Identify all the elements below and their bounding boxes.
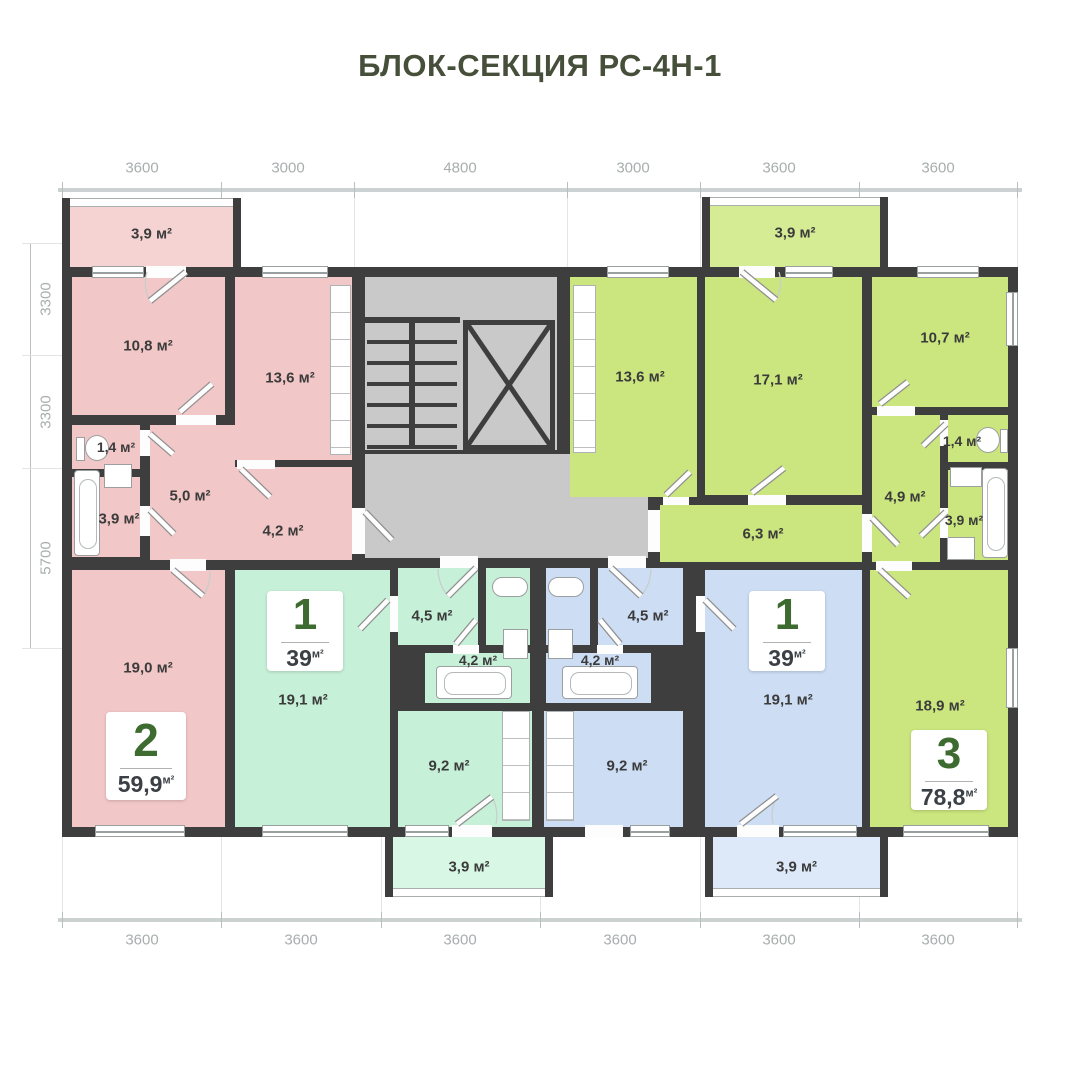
kitchen-counter-icon — [573, 285, 596, 453]
dim-tick — [700, 912, 701, 928]
room-pink-corridor — [235, 467, 352, 560]
balcony-glazing — [710, 197, 880, 206]
room-label: 4,2 м² — [459, 652, 497, 668]
door-opening — [862, 514, 872, 552]
dim-label-left: 5700 — [38, 541, 55, 574]
room-label: 4,5 м² — [627, 608, 668, 625]
sink-icon — [548, 629, 573, 659]
window — [262, 266, 328, 278]
room-label: 6,3 м² — [742, 526, 783, 543]
window — [903, 825, 989, 837]
room-label: 4,5 м² — [411, 608, 452, 625]
room-label: 1,4 м² — [943, 433, 981, 449]
room-label: 13,6 м² — [265, 370, 314, 387]
balcony-lime: 3,9 м² — [702, 197, 888, 267]
dim-tick — [859, 182, 860, 198]
balcony-pink: 3,9 м² — [62, 198, 241, 267]
kitchen-counter-icon — [330, 285, 351, 455]
door-opening — [585, 825, 623, 837]
room-label: 9,2 м² — [606, 758, 647, 775]
room-label: 19,0 м² — [123, 660, 172, 677]
badge-divider — [925, 781, 974, 782]
bathtub-icon — [562, 666, 638, 699]
dim-label-top: 3600 — [762, 160, 795, 177]
door-opening — [648, 510, 660, 552]
elevator-icon — [463, 320, 555, 450]
window — [95, 825, 185, 837]
kitchen-counter-icon — [502, 711, 530, 821]
guide-line — [22, 648, 62, 649]
window — [1006, 292, 1018, 346]
room-label: 3,9 м² — [776, 859, 817, 876]
guide-line — [1017, 837, 1018, 920]
window — [607, 266, 669, 278]
balcony-glazing — [713, 888, 880, 897]
dim-label-top: 3600 — [125, 160, 158, 177]
apartment-rooms-count: 1 — [775, 593, 799, 637]
balcony-glazing — [393, 888, 545, 897]
room-label: 3,9 м² — [945, 512, 983, 528]
room-label: 4,2 м² — [262, 523, 303, 540]
door-opening — [696, 596, 705, 632]
window — [405, 825, 449, 837]
room-label: 4,9 м² — [884, 489, 925, 506]
guide-line — [700, 190, 701, 270]
sink-icon — [950, 467, 982, 487]
guide-line — [567, 190, 568, 270]
dim-label-bottom: 3600 — [125, 932, 158, 949]
dim-tick — [859, 912, 860, 928]
washer-icon — [947, 537, 975, 560]
door-opening — [452, 825, 492, 837]
kitchen-counter-icon — [546, 711, 574, 821]
room-label: 10,7 м² — [920, 330, 969, 347]
badge-divider — [763, 642, 812, 643]
dim-tick — [540, 912, 541, 928]
toilet-icon — [1000, 429, 1008, 453]
door-opening — [170, 559, 206, 571]
dim-label-bottom: 3600 — [284, 932, 317, 949]
stairs-icon — [367, 323, 410, 449]
door-opening — [176, 415, 216, 425]
bathtub-icon — [436, 666, 512, 699]
page-title: БЛОК-СЕКЦИЯ РС-4Н-1 — [0, 48, 1080, 84]
apartment-area: 39м² — [768, 647, 805, 670]
guide-line — [221, 837, 222, 920]
room-label: 18,9 м² — [915, 698, 964, 715]
door-opening — [237, 460, 275, 469]
door-opening — [352, 508, 365, 554]
dim-tick — [1017, 912, 1018, 928]
window — [92, 266, 144, 278]
sink-icon — [503, 629, 528, 659]
guide-line — [22, 468, 62, 469]
dim-label-bottom: 3600 — [603, 932, 636, 949]
room-label: 19,1 м² — [763, 692, 812, 709]
dim-tick — [62, 182, 63, 198]
guide-line — [22, 355, 62, 356]
top-dimension-line — [58, 188, 1022, 192]
guide-line — [700, 837, 701, 920]
guide-line — [381, 837, 382, 920]
room-label: 3,9 м² — [448, 859, 489, 876]
guide-line — [1017, 190, 1018, 270]
apartment-area: 59,9м² — [118, 773, 175, 796]
door-opening — [876, 561, 912, 571]
dim-label-bottom: 3600 — [921, 932, 954, 949]
washer-icon — [548, 577, 584, 597]
room-blue-hall — [598, 568, 683, 645]
guide-line — [62, 837, 63, 920]
door-opening — [663, 497, 689, 505]
bathtub-icon — [74, 470, 100, 556]
dim-tick — [381, 912, 382, 928]
dim-tick — [62, 912, 63, 928]
room-label: 10,8 м² — [123, 338, 172, 355]
dim-tick — [567, 182, 568, 198]
room-label: 1,4 м² — [97, 439, 135, 455]
stairs-icon — [414, 323, 457, 449]
window — [630, 825, 670, 837]
window — [783, 825, 857, 837]
door-opening — [877, 406, 915, 416]
dim-label-left: 3300 — [38, 395, 55, 428]
door-opening — [739, 266, 775, 278]
apartment-rooms-count: 2 — [133, 717, 159, 763]
door-opening — [440, 556, 478, 568]
dim-label-left: 3300 — [38, 282, 55, 315]
window — [262, 825, 348, 837]
dim-label-bottom: 3600 — [762, 932, 795, 949]
dim-label-top: 4800 — [443, 160, 476, 177]
apartment-area: 39м² — [286, 647, 323, 670]
door-opening — [140, 506, 150, 536]
guide-line — [22, 243, 62, 244]
balcony-glazing — [70, 198, 233, 207]
room-label: 4,2 м² — [581, 652, 619, 668]
door-opening — [737, 825, 779, 837]
room-label: 5,0 м² — [169, 488, 210, 505]
apartment-badge-2-rooms: 2 59,9м² — [106, 712, 186, 800]
door-opening — [608, 556, 646, 568]
apartment-badge-1-room: 1 39м² — [267, 591, 343, 671]
wall — [409, 323, 415, 449]
apartment-area: 78,8м² — [921, 786, 978, 809]
window — [917, 266, 979, 278]
room-label: 19,1 м² — [278, 692, 327, 709]
apartment-badge-3-rooms: 3 78,8м² — [911, 730, 987, 810]
room-label: 13,6 м² — [615, 369, 664, 386]
window — [1006, 648, 1018, 708]
room-mint-hall — [398, 568, 478, 645]
apartment-badge-1-room: 1 39м² — [749, 591, 825, 671]
door-opening — [748, 495, 786, 505]
toilet-icon — [76, 437, 85, 461]
room-label: 3,9 м² — [131, 226, 172, 243]
badge-divider — [120, 768, 171, 769]
door-opening — [140, 430, 150, 456]
dim-tick — [221, 182, 222, 198]
dim-tick — [30, 243, 31, 648]
window — [785, 266, 833, 278]
room-label: 9,2 м² — [428, 758, 469, 775]
balcony-blue: 3,9 м² — [705, 837, 888, 897]
dim-tick — [700, 182, 701, 198]
apartment-rooms-count: 1 — [293, 593, 317, 637]
door-opening — [390, 596, 398, 632]
sink-icon — [104, 464, 132, 488]
badge-divider — [281, 642, 330, 643]
dim-label-top: 3600 — [921, 160, 954, 177]
balcony-mint: 3,9 м² — [385, 837, 553, 897]
dim-tick — [221, 912, 222, 928]
dim-tick — [1017, 182, 1018, 198]
room-label: 3,9 м² — [98, 511, 139, 528]
floor-plan-page: БЛОК-СЕКЦИЯ РС-4Н-1 3600 3000 4800 3000 … — [0, 0, 1080, 1080]
room-label: 17,1 м² — [753, 372, 802, 389]
dim-label-top: 3000 — [616, 160, 649, 177]
door-opening — [146, 266, 186, 278]
bathtub-icon — [982, 468, 1008, 558]
apartment-rooms-count: 3 — [937, 732, 961, 776]
guide-line — [354, 190, 355, 270]
dim-label-top: 3000 — [271, 160, 304, 177]
room-label: 3,9 м² — [774, 225, 815, 242]
washer-icon — [492, 577, 528, 597]
dim-tick — [354, 182, 355, 198]
dim-label-bottom: 3600 — [443, 932, 476, 949]
